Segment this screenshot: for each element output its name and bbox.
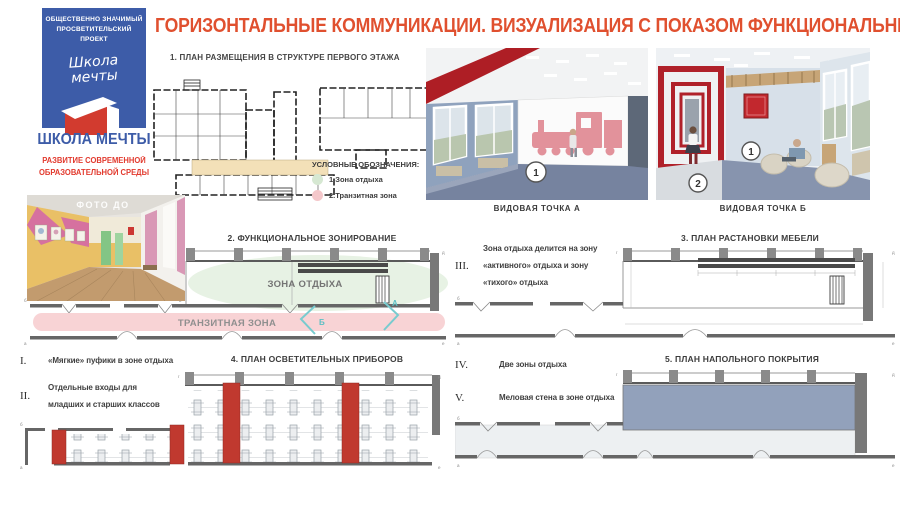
note-iii: III. Зона отдыха делится на зону «активн… bbox=[455, 240, 615, 291]
radiator bbox=[852, 150, 870, 176]
transit-zone-label: ТРАНЗИТНАЯ ЗОНА bbox=[178, 318, 276, 329]
svg-text:Б: Б bbox=[319, 318, 325, 327]
plan5-end-wall bbox=[855, 373, 867, 453]
render-view-b: 1 2 bbox=[656, 48, 870, 200]
section5-heading: 5. ПЛАН НАПОЛЬНОГО ПОКРЫТИЯ bbox=[617, 354, 867, 364]
photo-bench bbox=[143, 265, 157, 270]
plan3-end-wall bbox=[863, 253, 873, 321]
badge-text-line1: ОБЩЕСТВЕННО ЗНАЧИМЫЙ bbox=[42, 15, 146, 25]
badge-text-line2: ПРОСВЕТИТЕЛЬСКИЙ ПРОЕКТ bbox=[42, 25, 146, 45]
project-badge: ОБЩЕСТВЕННО ЗНАЧИМЫЙ ПРОСВЕТИТЕЛЬСКИЙ ПР… bbox=[42, 8, 146, 128]
axis-letter: б bbox=[20, 422, 23, 427]
axis-letter: г bbox=[616, 250, 618, 255]
axis-letter: а bbox=[24, 341, 27, 346]
plan2-end-wall bbox=[430, 253, 439, 311]
org-name: ШКОЛА МЕЧТЫ bbox=[36, 131, 151, 149]
note-ii: II. Отдельные входы для младших и старши… bbox=[20, 379, 195, 413]
note-v: V. Меловая стена в зоне отдыха bbox=[455, 389, 635, 406]
axis-letter: е bbox=[892, 341, 895, 346]
red-wall-board bbox=[744, 94, 768, 118]
plan3-inner-wall bbox=[455, 302, 623, 311]
radiator bbox=[478, 158, 508, 168]
axis-letter: а bbox=[457, 341, 460, 346]
section1-heading: 1. ПЛАН РАЗМЕЩЕНИЯ В СТРУКТУРЕ ПЕРВОГО Э… bbox=[170, 53, 400, 62]
section4-heading: 4. ПЛАН ОСВЕТИТЕЛЬНЫХ ПРИБОРОВ bbox=[192, 354, 442, 364]
transit-zone-swatch bbox=[312, 190, 323, 201]
photo-before: ФОТО ДО bbox=[27, 195, 185, 301]
axis-letter: а bbox=[457, 463, 460, 468]
plan3-bottom-wall bbox=[455, 330, 895, 338]
render-a-doorway bbox=[628, 96, 648, 168]
viewpoint-marker-1: 1 bbox=[526, 162, 546, 182]
section3-heading: 3. ПЛАН РАСТАНОВКИ МЕБЕЛИ bbox=[625, 233, 875, 243]
legend-item-rest-zone: 1.Зона отдыха bbox=[312, 174, 442, 185]
legend-title: УСЛОВНЫЕ ОБОЗНАЧЕНИЯ: bbox=[312, 160, 442, 169]
light-fixtures-row bbox=[54, 434, 170, 464]
plan5-top-wall bbox=[623, 370, 855, 383]
viewpoint-marker-2: 2 bbox=[689, 174, 707, 192]
plan4-top-wall bbox=[185, 372, 432, 385]
plan3-room bbox=[623, 258, 883, 324]
axis-letter: б bbox=[457, 416, 460, 421]
notes-list-2: III. Зона отдыха делится на зону «активн… bbox=[455, 240, 615, 291]
axis-letter: а bbox=[20, 465, 23, 470]
note-iv: IV. Две зоны отдыха bbox=[455, 356, 635, 373]
presentation-slide: ЗОНА ОТДЫХА ТРАНЗИТНАЯ ЗОНА Б А bbox=[0, 0, 900, 506]
legend-item-transit-zone: 2.Транзитная зона bbox=[312, 190, 442, 201]
note-i: I. «Мягкие» пуфики в зоне отдыха bbox=[20, 352, 195, 369]
org-tagline: РАЗВИТИЕ СОВРЕМЕННОЙ ОБРАЗОВАТЕЛЬНОЙ СРЕ… bbox=[33, 155, 155, 178]
rest-zone-swatch bbox=[312, 174, 323, 185]
rest-zone-label: ЗОНА ОТДЫХА bbox=[267, 279, 342, 290]
radiator bbox=[436, 166, 462, 176]
axis-letter: е bbox=[442, 341, 445, 346]
legend: УСЛОВНЫЕ ОБОЗНАЧЕНИЯ: 1.Зона отдыха 2.Тр… bbox=[312, 160, 442, 201]
slide-title: ГОРИЗОНТАЛЬНЫЕ КОММУНИКАЦИИ. ВИЗУАЛИЗАЦИ… bbox=[155, 15, 811, 38]
viewpoint-marker-1: 1 bbox=[742, 142, 760, 160]
photo-label: ФОТО ДО bbox=[76, 200, 129, 210]
svg-text:А: А bbox=[392, 299, 398, 308]
plan1-corridor-highlight bbox=[192, 160, 328, 175]
axis-letter: д bbox=[438, 374, 441, 379]
axis-letter: д bbox=[442, 250, 445, 255]
render-a-ceiling bbox=[426, 48, 648, 104]
axis-letter: д bbox=[892, 250, 895, 255]
house-logo-icon bbox=[59, 89, 129, 137]
view-a-caption: ВИДОВАЯ ТОЧКА А bbox=[426, 204, 648, 213]
axis-letter: е bbox=[438, 465, 441, 470]
section2-heading: 2. ФУНКЦИОНАЛЬНОЕ ЗОНИРОВАНИЕ bbox=[187, 233, 437, 243]
plan2-bottom-wall bbox=[30, 332, 446, 340]
render-view-a: 1 bbox=[426, 48, 648, 200]
axis-letter: е bbox=[892, 463, 895, 468]
rest-floor-area bbox=[623, 385, 855, 430]
view-b-caption: ВИДОВАЯ ТОЧКА Б bbox=[656, 204, 870, 213]
plan4-end-wall bbox=[432, 375, 440, 435]
notes-list-3: IV. Две зоны отдыха V. Меловая стена в з… bbox=[455, 356, 635, 406]
svg-text:1: 1 bbox=[533, 168, 539, 179]
axis-letter: б bbox=[457, 296, 460, 301]
notes-list-1: I. «Мягкие» пуфики в зоне отдыха II. Отд… bbox=[20, 352, 195, 413]
svg-text:2: 2 bbox=[695, 179, 701, 190]
svg-text:1: 1 bbox=[748, 147, 754, 158]
axis-letter: д bbox=[892, 372, 895, 377]
logo-script: Школа мечты bbox=[41, 52, 147, 89]
